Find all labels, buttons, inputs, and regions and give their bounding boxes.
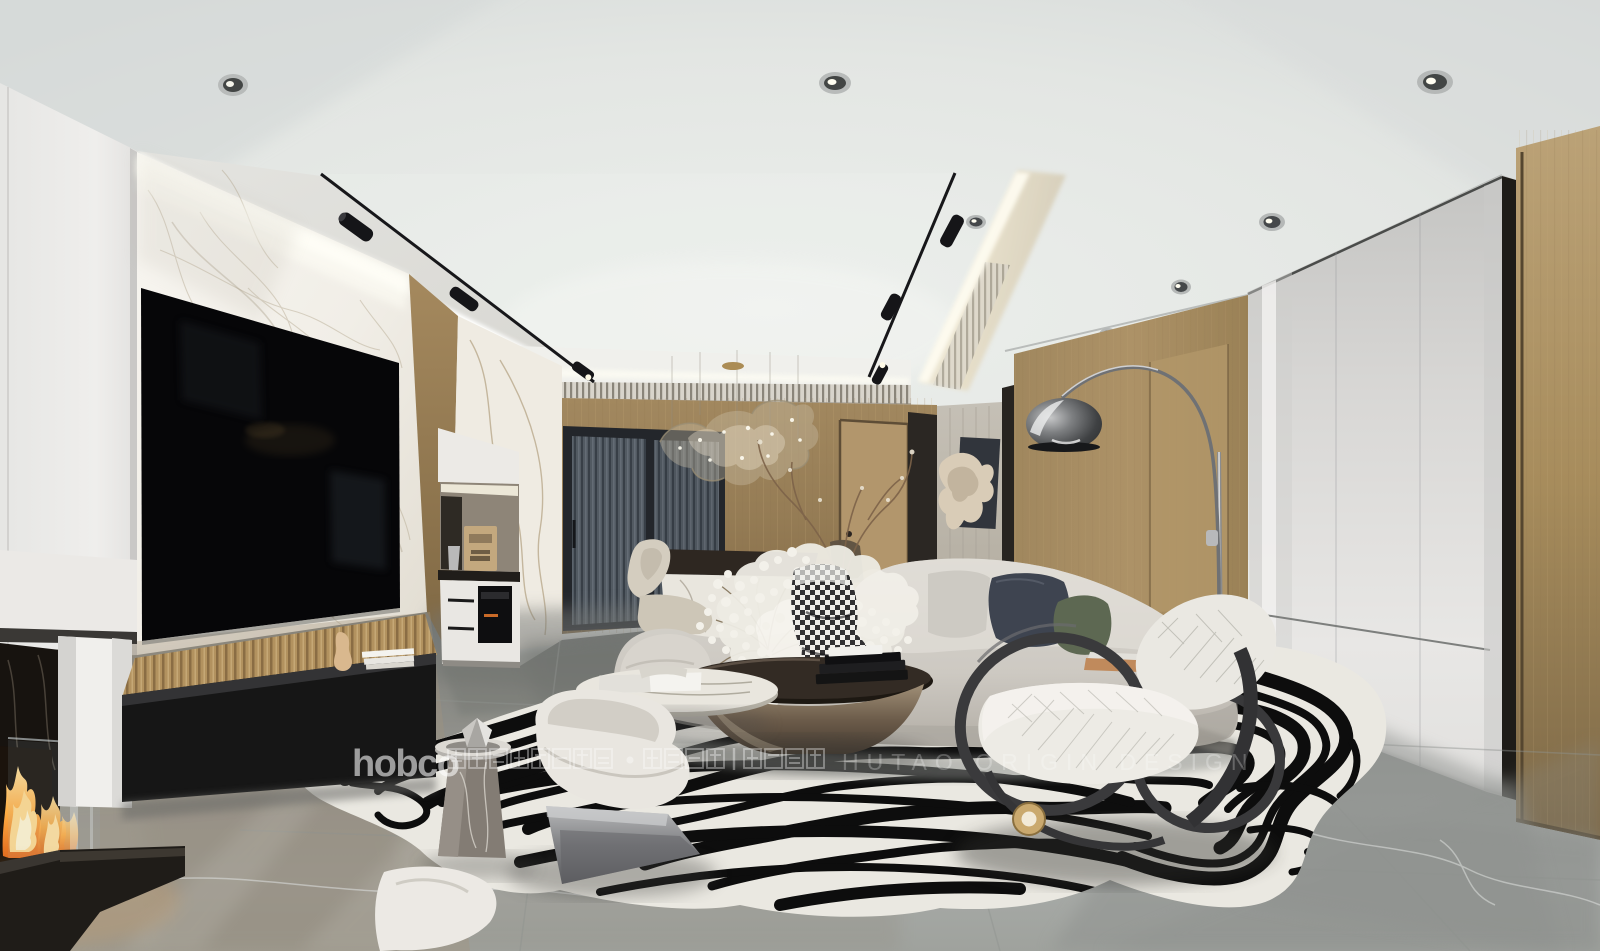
- svg-text:hobco: hobco: [352, 743, 459, 785]
- svg-text:HUTAO ORIGIN DESIGN: HUTAO ORIGIN DESIGN: [842, 749, 1256, 775]
